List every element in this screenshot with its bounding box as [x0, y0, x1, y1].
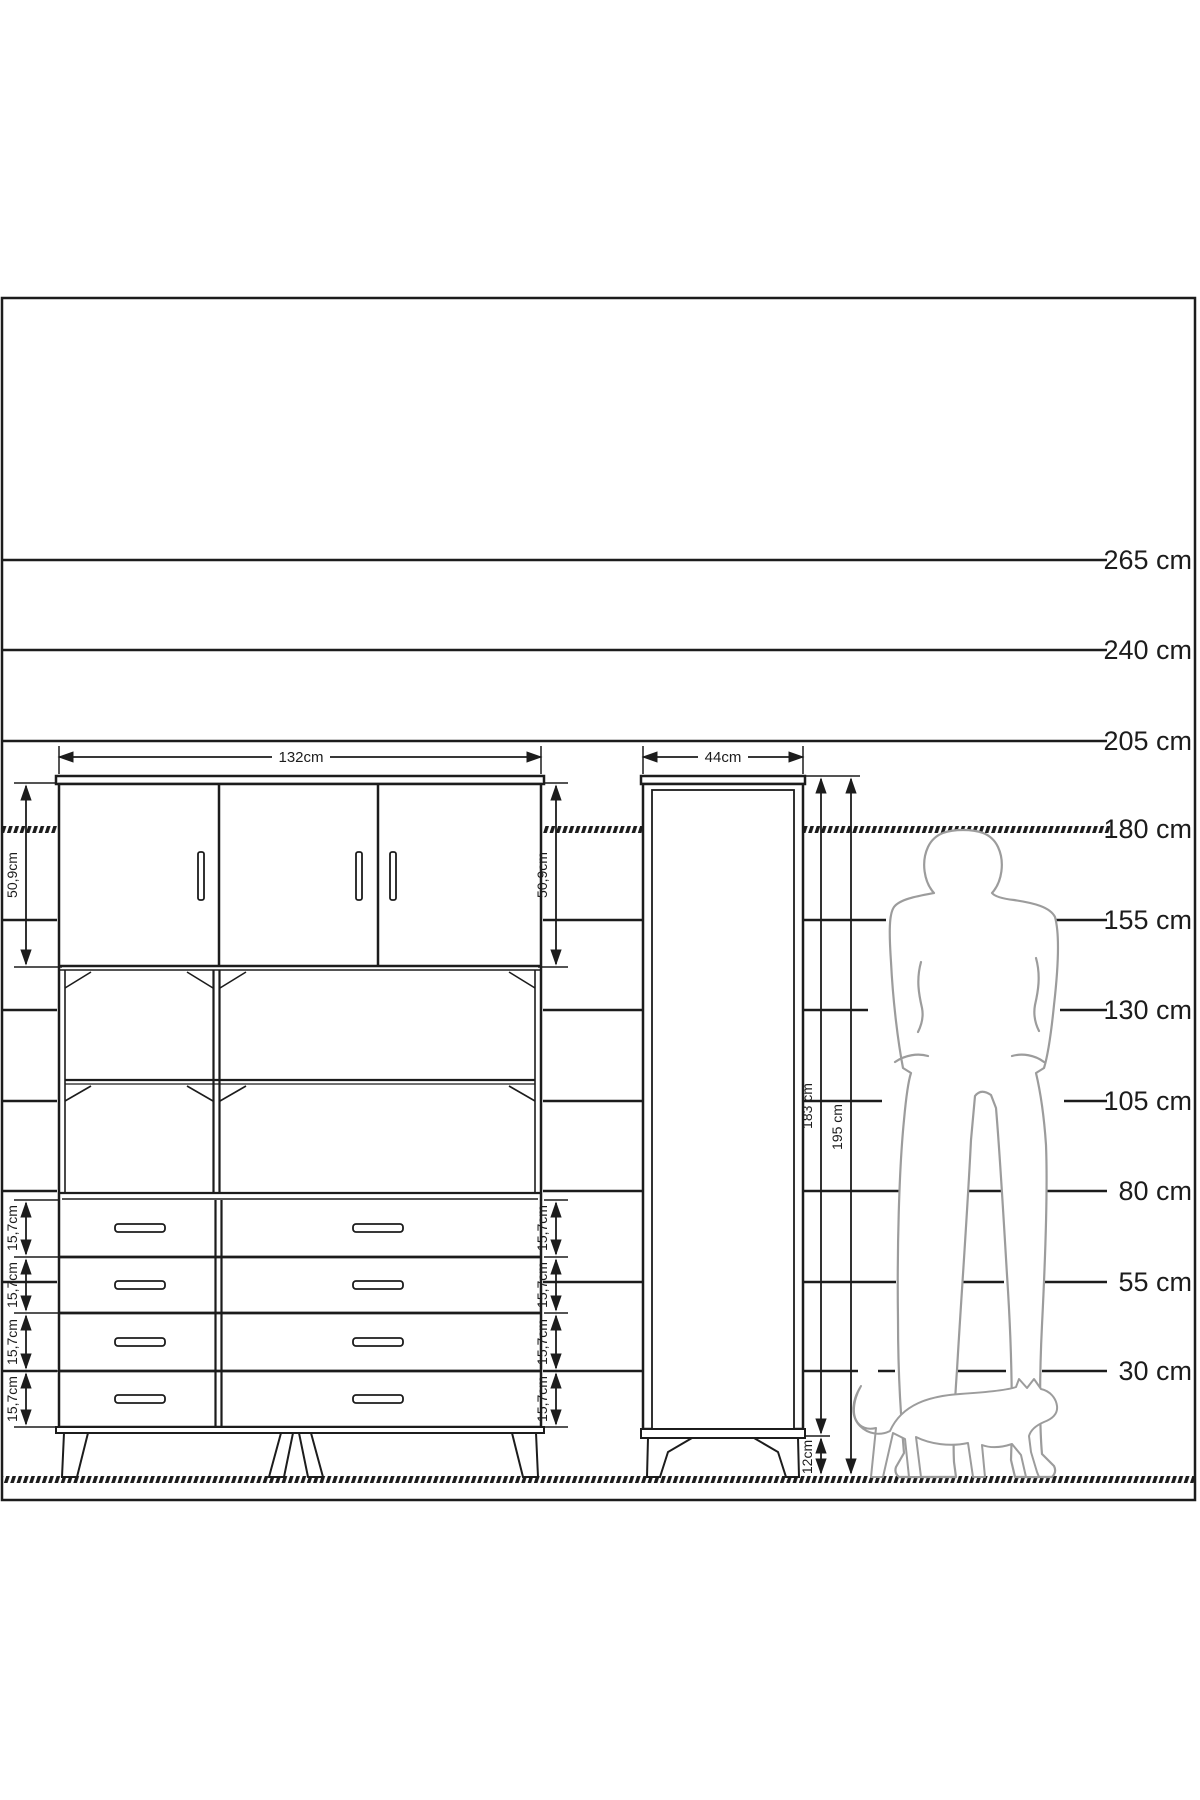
- ruler-label-80cm: 80 cm: [1118, 1176, 1192, 1206]
- wide-cabinet: [56, 776, 544, 1477]
- door-handle-right: [390, 852, 396, 900]
- ruler-label-180cm: 180 cm: [1103, 814, 1192, 844]
- dim-label-157cm-l1: 15,7cm: [4, 1205, 20, 1251]
- dim-label-157cm-l4: 15,7cm: [4, 1376, 20, 1422]
- ruler-labels: 265 cm 240 cm 205 cm 180 cm 155 cm 130 c…: [1103, 545, 1192, 1386]
- door-handle-middle: [356, 852, 362, 900]
- dim-label-509cm-left: 50,9cm: [4, 852, 20, 898]
- cat-outline: [853, 1379, 1057, 1477]
- dim-label-183cm: 183 cm: [799, 1083, 815, 1129]
- dim-label-132cm: 132cm: [278, 749, 323, 766]
- ruler-label-30cm: 30 cm: [1118, 1356, 1192, 1386]
- cat-silhouette: [853, 1379, 1057, 1477]
- drawing-canvas: 265 cm 240 cm 205 cm 180 cm 155 cm 130 c…: [0, 0, 1200, 1800]
- dim-label-157cm-r4: 15,7cm: [534, 1376, 550, 1422]
- technical-drawing: 265 cm 240 cm 205 cm 180 cm 155 cm 130 c…: [0, 0, 1200, 1800]
- dim-label-157cm-r2: 15,7cm: [534, 1262, 550, 1308]
- ruler-label-55cm: 55 cm: [1118, 1267, 1192, 1297]
- tall-cabinet: [641, 776, 805, 1477]
- dim-label-157cm-l3: 15,7cm: [4, 1319, 20, 1365]
- ruler-label-155cm: 155 cm: [1103, 905, 1192, 935]
- dim-label-157cm-r1: 15,7cm: [534, 1205, 550, 1251]
- tall-cabinet-bottom-panel: [641, 1429, 805, 1438]
- dim-label-157cm-l2: 15,7cm: [4, 1262, 20, 1308]
- dim-label-12cm: 12cm: [799, 1440, 815, 1474]
- dim-label-509cm-right: 50,9cm: [534, 852, 550, 898]
- ruler-label-130cm: 130 cm: [1103, 995, 1192, 1025]
- dim-label-44cm: 44cm: [705, 749, 742, 766]
- ruler-label-240cm: 240 cm: [1103, 635, 1192, 665]
- tall-cabinet-door: [652, 790, 794, 1429]
- wide-cabinet-legs: [62, 1433, 538, 1477]
- tall-cabinet-legs: [647, 1438, 799, 1477]
- ruler-label-205cm: 205 cm: [1103, 726, 1192, 756]
- ruler-label-265cm: 265 cm: [1103, 545, 1192, 575]
- door-handle-left: [198, 852, 204, 900]
- ruler-label-105cm: 105 cm: [1103, 1086, 1192, 1116]
- dim-label-195cm: 195 cm: [829, 1104, 845, 1150]
- wide-cabinet-body: [59, 784, 541, 1427]
- dim-label-157cm-r3: 15,7cm: [534, 1319, 550, 1365]
